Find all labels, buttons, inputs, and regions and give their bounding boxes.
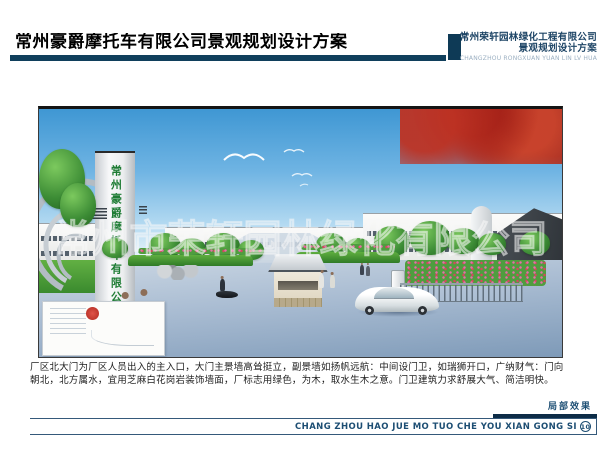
rendering-image: 常州豪爵摩托车有限公司 <box>38 106 563 358</box>
page-title: 常州豪爵摩托车有限公司景观规划设计方案 <box>10 33 446 55</box>
romanized-title: CHANG ZHOU HAO JUE MO TUO CHE YOU XIAN G… <box>295 422 577 432</box>
design-board-page: 常州豪爵摩托车有限公司景观规划设计方案 常州荣轩园林绿化工程有限公司 景观规划设… <box>0 0 600 463</box>
header-accent-bar <box>10 55 446 61</box>
kiosk-window <box>278 281 318 290</box>
detail-effect-caption: 局部效果 <box>548 399 592 412</box>
footer-rule-box: CHANG ZHOU HAO JUE MO TUO CHE YOU XIAN G… <box>30 418 597 435</box>
firm-block: 常州荣轩园林绿化工程有限公司 景观规划设计方案 CHANGZHOU RONGXU… <box>460 32 597 63</box>
firm-romanized: CHANGZHOU RONGXUAN YUAN LIN LV HUA <box>460 54 597 63</box>
plan-text-lines <box>50 308 86 337</box>
red-maple-foliage <box>400 106 563 164</box>
watermark: 常州市荣轩园林绿化有限公司 <box>39 208 562 263</box>
firm-name: 常州荣轩园林绿化工程有限公司 <box>460 32 597 43</box>
pedestrian <box>360 265 364 275</box>
site-plan-inset <box>42 301 165 356</box>
page-number-badge: 10 <box>580 421 591 432</box>
landscape-rocks <box>149 265 201 280</box>
motorcyclist <box>220 279 225 291</box>
white-car <box>355 281 439 314</box>
pedestrian <box>319 274 324 288</box>
description-paragraph: 厂区北大门为厂区人员出入的主入口，大门主景墙高耸挺立，副景墙如扬帆远航：中间设门… <box>30 362 574 387</box>
romanized-title-row: CHANG ZHOU HAO JUE MO TUO CHE YOU XIAN G… <box>295 419 591 434</box>
pedestrian <box>366 266 370 276</box>
footer-thick-rule <box>493 414 597 418</box>
plan-road-line <box>91 330 154 347</box>
kiosk-body <box>274 272 322 307</box>
birds-icon <box>222 146 332 191</box>
pedestrian <box>330 275 335 288</box>
kiosk-stone-base <box>274 298 322 308</box>
red-seal <box>86 307 99 320</box>
description-line: 朝北，北方属水，宜用芝麻白花岗岩装饰墙面，厂标志用绿色，为木，取水生木之意。门卫… <box>30 375 574 388</box>
description-line: 厂区北大门为厂区人员出入的主入口，大门主景墙高耸挺立，副景墙如扬帆远航：中间设门… <box>30 362 574 375</box>
motorcycle <box>216 291 238 298</box>
car-cabin <box>374 287 414 298</box>
firm-subtitle: 景观规划设计方案 <box>460 43 597 54</box>
